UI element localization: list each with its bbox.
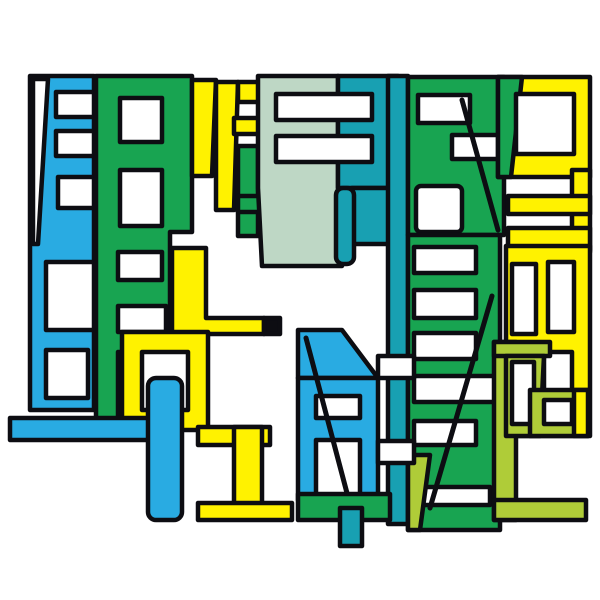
green-ladder-window-1 <box>414 247 476 273</box>
lime-ring-yellow-edge <box>574 390 588 436</box>
blue-tower-window-2 <box>56 131 94 156</box>
blue-tower-window-4 <box>46 262 94 330</box>
cross-bar-white-2 <box>378 441 414 463</box>
yellow-ring-window-2 <box>548 262 574 332</box>
blue-arm <box>10 418 150 440</box>
yellow-i-base <box>198 503 292 520</box>
green-ladder-window-4 <box>414 376 498 402</box>
blue-tower-window-1 <box>56 92 94 117</box>
teal-descender <box>336 188 354 264</box>
e-window-1 <box>276 94 372 120</box>
yellow-l <box>172 248 264 334</box>
green-tower-window-3 <box>118 252 162 280</box>
green-ladder-window-5 <box>414 421 476 445</box>
green-ladder-window-2 <box>414 290 476 318</box>
blue-tower-window-5 <box>46 350 88 398</box>
green-tower-window-4 <box>118 306 166 332</box>
green-r-window-3 <box>416 186 462 232</box>
blue-descender <box>148 378 182 520</box>
yellow-j-stem <box>192 80 216 176</box>
yellow-i-stem <box>234 427 262 507</box>
cross-bar-white-1 <box>378 356 414 378</box>
green-tower-window-1 <box>120 98 162 142</box>
artwork-svg <box>0 0 600 600</box>
blue-m-window-2 <box>316 440 360 500</box>
lime-ring-window <box>544 400 572 424</box>
blue-tower-window-3 <box>58 177 94 208</box>
e-window-2 <box>276 136 372 162</box>
lime-foot <box>494 500 586 520</box>
yellow-o-window <box>516 94 574 154</box>
teal-tab <box>340 508 362 546</box>
yellow-e-bar-1 <box>508 196 590 214</box>
green-ladder-window-3 <box>414 333 476 359</box>
artwork-canvas <box>0 0 600 600</box>
yellow-ring-window-1 <box>512 264 536 334</box>
yellow-f-stem <box>216 82 238 210</box>
green-tower-window-2 <box>120 170 162 226</box>
green-h-left-bar <box>238 146 258 236</box>
black-square <box>264 318 280 334</box>
